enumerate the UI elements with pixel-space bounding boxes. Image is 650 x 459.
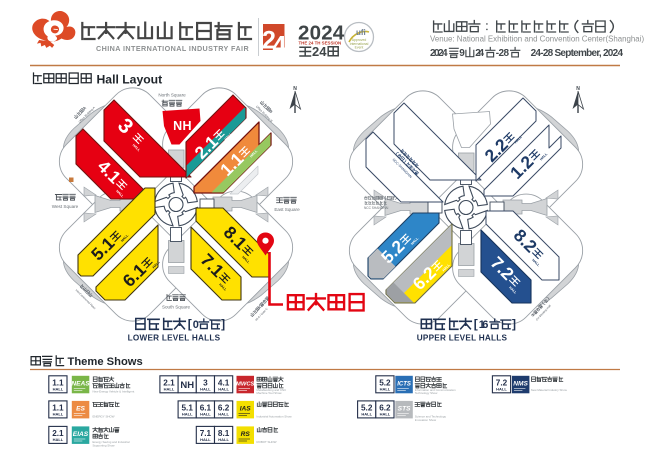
svg-text:Innovation Show: Innovation Show	[415, 418, 437, 422]
svg-text:HALL: HALL	[53, 437, 64, 442]
svg-text:Theme Shows: Theme Shows	[68, 356, 143, 368]
svg-text:IAS: IAS	[240, 406, 252, 413]
svg-text:Technology Show: Technology Show	[415, 391, 439, 395]
svg-text:2024: 2024	[430, 48, 448, 59]
svg-text:NH: NH	[173, 119, 192, 133]
svg-text:]: ]	[221, 317, 225, 331]
svg-text:HALL: HALL	[200, 387, 211, 392]
svg-text:-28: -28	[496, 48, 510, 59]
svg-text:24-28 September, 2024: 24-28 September, 2024	[531, 48, 624, 59]
svg-text:EIAS: EIAS	[73, 431, 89, 438]
svg-text:West Square: West Square	[52, 204, 79, 209]
svg-text:[: [	[474, 317, 478, 331]
svg-text:N: N	[576, 86, 580, 92]
svg-text:0: 0	[193, 319, 199, 331]
svg-text:CHINA INTERNATIONAL INDUSTRY F: CHINA INTERNATIONAL INDUSTRY FAIR	[96, 44, 249, 53]
svg-text:N: N	[293, 86, 297, 92]
svg-text:[: [	[188, 317, 192, 331]
svg-text:HALL: HALL	[200, 412, 211, 417]
svg-text:HALL: HALL	[53, 412, 64, 417]
svg-text:North Square: North Square	[158, 93, 186, 98]
svg-text:STS: STS	[398, 406, 411, 413]
svg-text:9: 9	[459, 48, 465, 59]
svg-text:]: ]	[512, 317, 516, 331]
svg-text:24: 24	[312, 44, 327, 59]
svg-text:HALL: HALL	[380, 412, 391, 417]
svg-text:Hall Layout: Hall Layout	[97, 73, 163, 87]
svg-text:HALL: HALL	[218, 412, 229, 417]
svg-text:NH: NH	[180, 380, 194, 391]
svg-text:HALL: HALL	[182, 412, 193, 417]
svg-text:HALL: HALL	[380, 387, 391, 392]
svg-text:Industrial Automation Show: Industrial Automation Show	[257, 415, 293, 419]
svg-text:NCC SHANGHAI: NCC SHANGHAI	[364, 206, 389, 210]
svg-text:NMS: NMS	[513, 381, 528, 388]
svg-text:ufi: ufi	[356, 28, 366, 37]
svg-text:HALL: HALL	[496, 387, 507, 392]
svg-text:UPPER LEVEL HALLS: UPPER LEVEL HALLS	[417, 334, 508, 343]
svg-text:16: 16	[479, 319, 489, 331]
svg-text:New Material Industry Show: New Material Industry Show	[531, 388, 568, 392]
svg-text:ICTS: ICTS	[397, 382, 411, 388]
svg-text:MWCS: MWCS	[236, 382, 254, 388]
svg-text:HALL: HALL	[361, 412, 372, 417]
svg-text:4: 4	[273, 32, 287, 60]
svg-text:NEAS: NEAS	[71, 381, 90, 388]
svg-text:Supporting Show: Supporting Show	[93, 444, 116, 448]
svg-text:Event: Event	[355, 46, 364, 50]
svg-text:ES: ES	[76, 406, 85, 413]
svg-text:Venue: National Exhibition an: Venue: National Exhibition and Conventio…	[430, 35, 644, 44]
svg-text:New Energy Vehicle & Intellige: New Energy Vehicle & Intelligent	[93, 390, 135, 394]
svg-text:HALL: HALL	[200, 437, 211, 442]
svg-text:HALL: HALL	[218, 387, 229, 392]
svg-text:ENERGY SHOW: ENERGY SHOW	[93, 415, 115, 419]
svg-text:HALL: HALL	[53, 387, 64, 392]
svg-text:South Square: South Square	[162, 305, 191, 310]
svg-text:HALL: HALL	[218, 437, 229, 442]
svg-text:Machine Tool Show: Machine Tool Show	[257, 391, 283, 395]
svg-text:LOWER LEVEL HALLS: LOWER LEVEL HALLS	[128, 334, 221, 343]
svg-text:East Square: East Square	[274, 207, 300, 212]
svg-text:24: 24	[475, 48, 484, 59]
svg-text:HALL: HALL	[164, 387, 175, 392]
svg-text:RS: RS	[241, 431, 251, 438]
svg-text:ROBOT SHOW: ROBOT SHOW	[257, 440, 277, 444]
